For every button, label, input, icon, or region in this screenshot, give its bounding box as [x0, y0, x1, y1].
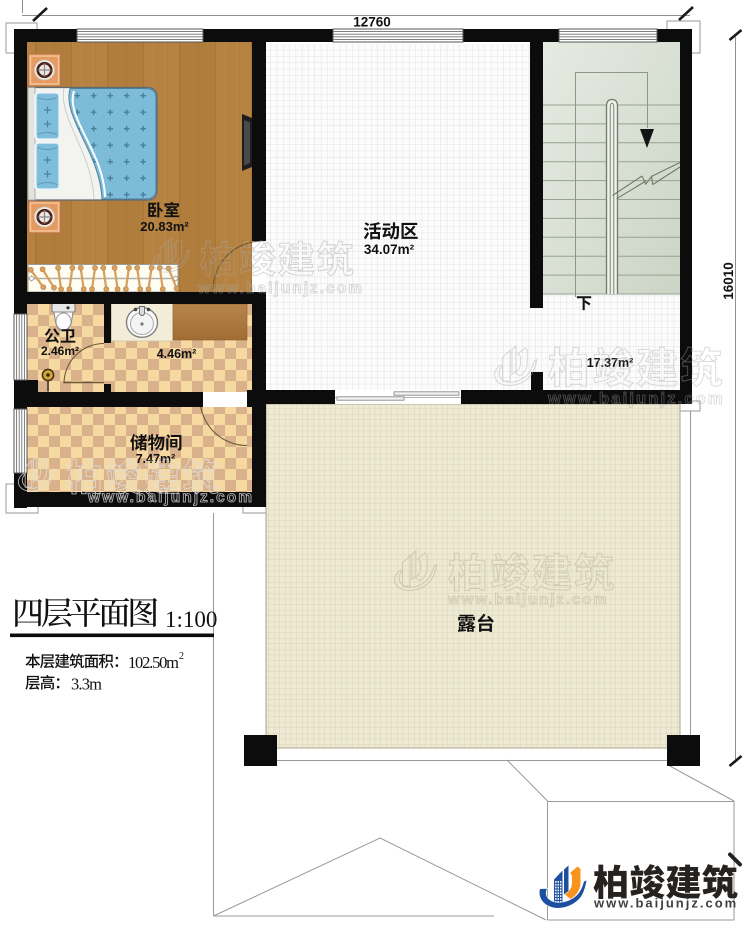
svg-text:1:100: 1:100	[165, 607, 217, 632]
svg-text:20.83m²: 20.83m²	[140, 219, 189, 234]
svg-text:www.baijunjz.com: www.baijunjz.com	[197, 280, 364, 297]
svg-text:3.3m: 3.3m	[71, 675, 102, 694]
svg-text:7.47m²: 7.47m²	[136, 452, 176, 466]
svg-text:12760: 12760	[353, 15, 391, 30]
svg-text:34.07m²: 34.07m²	[364, 242, 415, 257]
svg-text:102.50m: 102.50m	[128, 653, 179, 672]
svg-text:www.baijunjz.com: www.baijunjz.com	[447, 591, 609, 608]
svg-text:16010: 16010	[721, 262, 736, 300]
svg-text:2.46m²: 2.46m²	[41, 344, 79, 358]
svg-text:www.baijunjz.com: www.baijunjz.com	[87, 489, 254, 506]
svg-text:www.baijunjz.com: www.baijunjz.com	[593, 896, 738, 911]
svg-text:4.46m²: 4.46m²	[157, 347, 197, 361]
svg-text:www.baijunjz.com: www.baijunjz.com	[547, 390, 725, 408]
svg-text:2: 2	[179, 651, 184, 662]
